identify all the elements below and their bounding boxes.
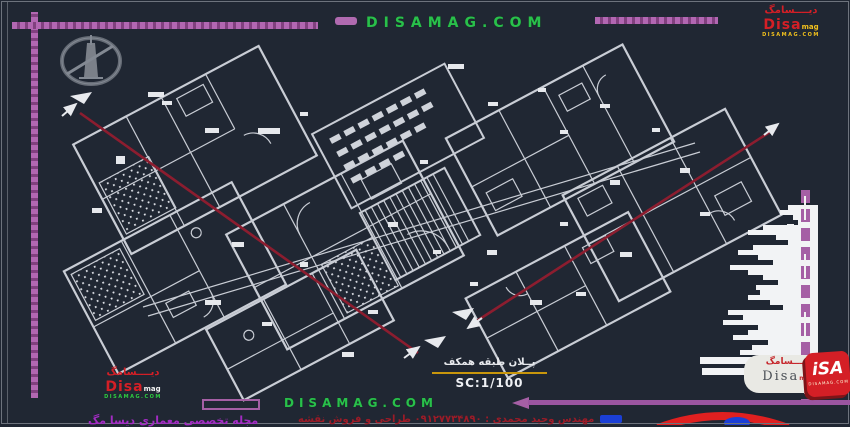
logo-url-text: DISAMAG.COM [752,33,830,38]
logo-script-text: ديــــسامگ [93,368,173,378]
logo-script-text: ديــــسامگ [752,6,830,16]
plan-caption: پــلان طبقه همکف SC:1/100 [432,357,547,391]
designer-credit-text: مهندس وحید محمدی : ۰۹۱۲۷۷۳۴۸۹۰ طراحی و ف… [298,414,628,425]
border-arrow-icon [512,397,562,409]
disa-logo-top-right[interactable]: ديــــسامگ Disamag DISAMAG.COM [752,6,830,38]
section-line-b [452,124,778,328]
logo-name-text: Disa [763,17,801,33]
cad-sheet: { "site": { "domain_top": "DISAMAG.COM",… [0,0,850,425]
border-bottom [560,400,850,405]
isa-cube-logo[interactable]: iSA DISAMAG.COM [805,351,850,398]
clipped-logo-bottom-right [658,416,788,425]
border-top-dash [335,17,357,25]
plan-title: پــلان طبقه همکف [432,357,547,370]
tile-hatch-room [99,157,176,235]
section-marker-a-start-icon [70,92,92,104]
section-marker-a-end-icon [424,336,446,348]
disa-logo-bottom-left[interactable]: ديــــسامگ Disamag DISAMAG.COM [93,368,173,400]
logo-name-text: Disa [105,379,143,395]
site-url-bottom[interactable]: DISAMAG.COM [284,396,438,410]
company-stamp-icon [62,35,120,84]
border-left [31,12,38,398]
tile-hatch-room [321,237,398,313]
logo-name-text: Disa [762,369,799,384]
room-cluster-lower-right [466,212,671,378]
caption-underline [432,372,547,374]
tile-hatch-room [71,249,144,321]
magazine-caption-text: مجله تخصصی معماری دیسا مگ [88,414,258,427]
stair-grid-upper [312,64,484,209]
credit-highlight-chip [600,415,622,423]
sheet-inner-line [7,2,8,423]
section-marker-b-start-icon [452,308,474,320]
plan-linework [64,44,782,400]
logo-url-text: DISAMAG.COM [93,395,173,400]
floorplan-drawing [0,0,850,425]
plan-scale-label: SC:1/100 [432,376,547,391]
logo-suffix-text: mag [144,385,161,393]
site-url-top[interactable]: DISAMAG.COM [366,15,547,31]
border-top-right [595,17,718,24]
room-cluster-center [226,141,464,350]
border-top-left [12,22,318,29]
cube-logo-subtext: DISAMAG.COM [807,379,850,386]
plan-text-blocks [92,64,710,357]
border-bottom-rect [202,399,260,410]
cube-logo-text: iSA [805,359,850,379]
logo-suffix-text: mag [802,23,819,31]
